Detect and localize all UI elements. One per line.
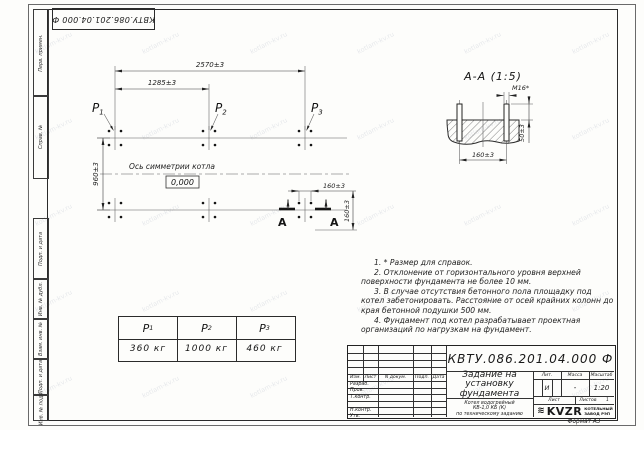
tb-header-docum: N докум. — [378, 374, 413, 381]
tb-header-list: Лист — [363, 374, 378, 381]
load-table-header-p2: P2 — [177, 317, 236, 339]
note-3: 3. В случае отсутствия бетонного пола пл… — [361, 287, 615, 316]
load-p3-leader — [307, 114, 315, 131]
load-table-value-p2: 1000 кг — [177, 339, 236, 359]
tb-header-data: Дата — [431, 374, 446, 381]
drawing-subtitle-line: по техническому заданию — [456, 412, 523, 418]
thread-label: М16* — [512, 84, 530, 92]
title-block-doc-number: КВТУ.086.201.04.000 Ф — [446, 346, 615, 371]
load-p1-label: P1 — [92, 101, 104, 117]
load-p1-leader — [104, 114, 114, 131]
kvzr-logo-word: KVZR — [547, 405, 582, 418]
anchor-bolt-right — [504, 104, 509, 141]
section-letter-right: А — [330, 216, 339, 229]
tb-line — [552, 379, 553, 396]
tb-lit-value: И — [542, 379, 551, 396]
title-block: КВТУ.086.201.04.000 Ф Изм. Лист N докум.… — [347, 345, 616, 419]
load-p2-label: P2 — [215, 101, 227, 117]
tb-line — [348, 353, 446, 354]
tb-list-label: Лист — [533, 396, 575, 404]
section-letter-left: А — [278, 216, 287, 229]
drawing-sheet: kotlam-kv.rukotlam-kv.rukotlam-kv.rukotl… — [0, 0, 644, 430]
load-table: P1 P2 P3 360 кг 1000 кг 460 кг — [118, 316, 296, 362]
kvzr-logo-caption: КОТЕЛЬНЫЙ ЗАВОД РЭП — [584, 407, 613, 416]
drawing-subtitle: Котел водогрейный КВ-1,0 КБ (К) по техни… — [446, 398, 533, 420]
load-p3-label: P3 — [311, 101, 323, 117]
dim-960-label: 960±3 — [92, 162, 100, 186]
kvzr-logo-icon: ≋ — [537, 407, 545, 416]
tb-masshtab-header: Масштаб — [589, 371, 614, 379]
tb-line — [348, 360, 446, 361]
dim-2570-label: 2570±3 — [196, 61, 224, 69]
plan-view: Ось симметрии котла 0,000 2570±3 1285±3 — [92, 61, 357, 230]
dim-1285-label: 1285±3 — [148, 79, 176, 87]
dim-160h-label: 160±3 — [323, 182, 345, 190]
load-table-header-p1: P1 — [119, 317, 177, 339]
dim-50-label: 50±3 — [518, 124, 526, 142]
tb-line — [348, 367, 446, 368]
load-table-value-p3: 460 кг — [236, 339, 293, 359]
tb-row-utv: Утв. — [348, 414, 380, 421]
tb-lit-header: Лит. — [533, 371, 561, 379]
manufacturer-logo: ≋ KVZR КОТЕЛЬНЫЙ ЗАВОД РЭП — [534, 404, 616, 419]
level-mark-value: 0,000 — [171, 178, 194, 187]
load-table-header-p3: P3 — [236, 317, 293, 339]
drawing-title: Задание на установку фундамента — [446, 372, 533, 398]
technical-notes: 1. * Размер для справок. 2. Отклонение о… — [361, 258, 615, 335]
tb-masshtab-value: 1:20 — [589, 379, 614, 396]
dim-160-label: 160±3 — [472, 151, 494, 159]
tb-massa-value: - — [561, 379, 589, 396]
tb-row-tkontr: Т.контр. — [348, 394, 380, 401]
section-view: А-А (1:5) М16* 50±3 160±3 — [447, 70, 533, 164]
section-title: А-А (1:5) — [463, 70, 522, 83]
note-4: 4. Фундамент под котел разрабатывает про… — [361, 316, 615, 335]
tb-listov-label: Листов — [575, 396, 601, 404]
tb-header-izm: Изм. — [348, 374, 363, 381]
tb-header-podp: Подп. — [413, 374, 431, 381]
load-p2-leader — [211, 114, 219, 131]
anchor-bolt-left — [457, 104, 462, 141]
tb-line — [348, 401, 446, 402]
note-2: 2. Отклонение от горизонтального уровня … — [361, 268, 615, 287]
symmetry-axis-label: Ось симметрии котла — [129, 162, 215, 171]
tb-massa-header: Масса — [561, 371, 589, 379]
load-table-value-p1: 360 кг — [119, 339, 177, 359]
kvzr-caption-line2: ЗАВОД РЭП — [584, 411, 610, 416]
dim-160v-label: 160±3 — [343, 200, 351, 222]
format-label: Формат А3 — [552, 419, 616, 425]
note-1: 1. * Размер для справок. — [361, 258, 615, 268]
tb-listov-value: 1 — [601, 396, 614, 404]
